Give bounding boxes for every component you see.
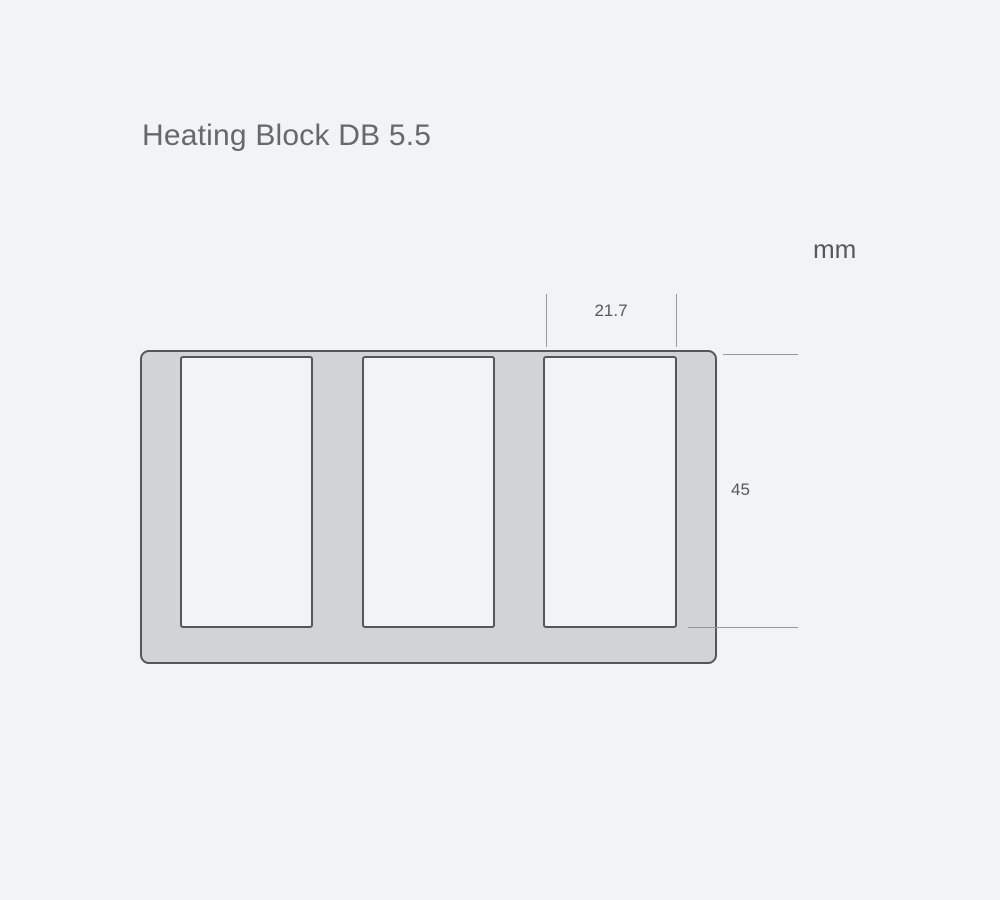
well-slot [543, 356, 677, 628]
dimension-tick-right [676, 294, 677, 347]
unit-label: mm [813, 234, 856, 265]
extension-line-top [723, 354, 798, 355]
well-width-dimension-label: 21.7 [546, 301, 676, 321]
well-slot [180, 356, 313, 628]
well-depth-dimension-label: 45 [731, 480, 750, 500]
page-title: Heating Block DB 5.5 [142, 119, 431, 153]
extension-line-bottom [688, 627, 798, 628]
heating-block-diagram-page: Heating Block DB 5.5 mm 21.7 45 [0, 0, 1000, 900]
well-slot [362, 356, 495, 628]
